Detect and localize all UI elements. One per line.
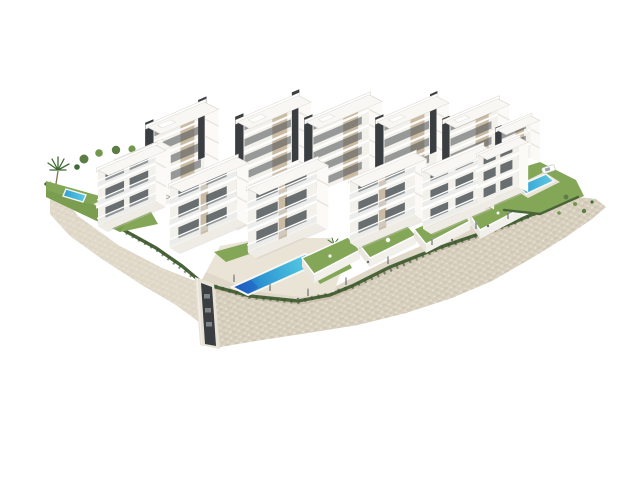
shaft-window xyxy=(204,294,210,299)
render-canvas xyxy=(0,0,640,480)
architectural-render xyxy=(0,0,640,480)
garden-table xyxy=(328,254,331,257)
garden-parasol xyxy=(386,238,390,242)
tree xyxy=(80,155,89,164)
